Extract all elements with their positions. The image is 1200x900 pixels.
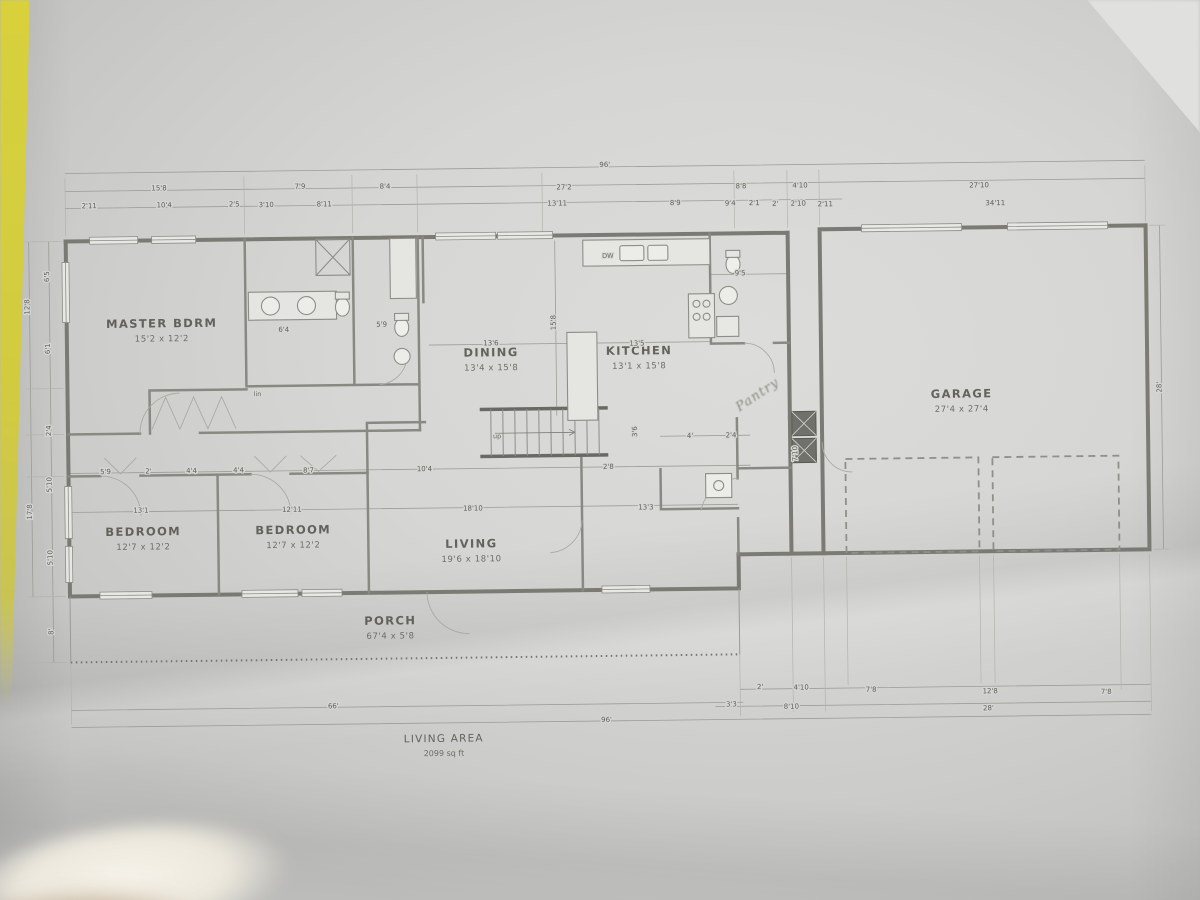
dimension-label: 7'8	[866, 686, 877, 694]
toilet-icon	[706, 473, 732, 497]
dimension-label: 96'	[599, 161, 610, 169]
dimension-label: 2'5	[229, 200, 240, 208]
dimension-label: 2'	[772, 200, 779, 208]
dimension-label: 4'10	[792, 181, 807, 189]
sink-icon	[394, 348, 410, 364]
dimension-label: 5'9	[376, 321, 387, 329]
room-label-bedroom-2: BEDROOM	[255, 522, 331, 537]
dimension-label: 4'	[687, 432, 694, 440]
dimension-label: 34'11	[985, 199, 1005, 207]
floor-plan-photo: MASTER BDRM 15'2 x 12'2 DINING 13'4 x 15…	[0, 0, 1200, 900]
room-label-living: LIVING	[445, 536, 497, 551]
interior-walls	[66, 233, 792, 597]
dimension-label: 7'10	[791, 446, 799, 461]
kitchen-sink-icon	[620, 245, 644, 260]
dimension-label: 28'	[983, 704, 994, 712]
room-label-master: MASTER BDRM	[106, 316, 217, 331]
sink-icon	[261, 297, 279, 315]
sink-icon	[719, 286, 737, 304]
room-dims-kitchen: 13'1 x 15'8	[612, 361, 666, 372]
dimension-label: 6'4	[278, 326, 289, 334]
handwritten-note: Pantry	[732, 375, 782, 415]
dimension-label: 3'6	[631, 426, 639, 437]
room-dims-bedroom-1: 12'7 x 12'2	[116, 542, 170, 553]
dimension-label: 13'1	[133, 507, 148, 515]
toilet-icon	[335, 298, 349, 316]
dimension-label: 8'10	[784, 703, 799, 711]
fur-highlight	[0, 806, 294, 900]
dimension-label: 2'4	[45, 425, 53, 436]
dimension-label: 13'5	[629, 339, 644, 347]
dimension-label: 15'8	[151, 184, 166, 192]
dimension-label: 12'11	[282, 506, 302, 514]
bathtub-icon	[390, 238, 417, 298]
room-dims-garage: 27'4 x 27'4	[935, 404, 989, 415]
dimension-label: 4'4	[186, 467, 197, 475]
dimension-label: 13'6	[483, 339, 499, 347]
floor-plan-drawing: MASTER BDRM 15'2 x 12'2 DINING 13'4 x 15…	[0, 0, 1200, 900]
dimension-label: 96'	[601, 716, 612, 724]
annotation-label: lin	[254, 390, 262, 398]
dimension-label: 13'3	[638, 503, 653, 511]
sink-icon	[297, 296, 315, 314]
dimension-label: 10'4	[417, 465, 433, 473]
garage-door-dashed	[845, 457, 979, 553]
room-dims-master: 15'2 x 12'2	[135, 334, 189, 345]
dimension-label: 28'	[1155, 382, 1163, 393]
dimension-label: 66'	[328, 702, 339, 710]
dimension-label: 8'4	[380, 183, 391, 191]
dimension-label: 8'8	[736, 182, 747, 190]
dimension-label: 2'4	[726, 431, 737, 439]
dimension-label: 12'8	[23, 299, 31, 314]
dimension-label: 2'	[757, 683, 764, 691]
room-dims-bedroom-2: 12'7 x 12'2	[266, 540, 320, 551]
dimension-label: 7'9	[295, 183, 306, 191]
room-label-garage: GARAGE	[931, 386, 993, 401]
room-label-bedroom-1: BEDROOM	[105, 524, 181, 539]
dimension-label: 8'7	[303, 466, 314, 474]
dimension-label: 27'10	[969, 181, 989, 189]
dimension-label: 27'2	[556, 183, 571, 191]
dimension-label: 8'11	[317, 200, 332, 208]
dimension-label: 3'10	[259, 201, 274, 209]
dimension-label: 2'8	[603, 463, 614, 471]
dimension-label: 4'10	[793, 683, 808, 691]
kitchen-sink-icon	[648, 245, 668, 260]
toilet-icon	[395, 318, 409, 336]
room-dims-porch: 67'4 x 5'8	[366, 631, 414, 642]
dimension-label: 15'8	[550, 315, 558, 330]
range-icon	[688, 294, 715, 338]
annotation-label: DW	[602, 252, 614, 260]
dimension-label: 6'5	[43, 271, 51, 282]
room-dims-living: 19'6 x 18'10	[441, 554, 501, 565]
dimension-label: 5'9	[100, 468, 111, 476]
dimension-label: 12'8	[983, 687, 998, 695]
living-area-value: 2099 sq ft	[424, 749, 465, 758]
garage-door-dashed	[992, 456, 1119, 552]
dimension-label: 5'10	[46, 550, 54, 565]
dimension-label: 2'1	[749, 199, 760, 207]
dimension-label: 3'3	[726, 700, 737, 708]
dimension-label: 2'10	[791, 199, 806, 207]
garage-doors	[845, 456, 1119, 553]
room-dims-dining: 13'4 x 15'8	[464, 363, 518, 374]
dimension-label: 8'	[47, 628, 55, 635]
fixtures	[248, 233, 817, 503]
dimension-label: 8'9	[670, 199, 681, 207]
dimension-label: 2'11	[818, 200, 833, 208]
dimension-label: 6'1	[44, 343, 52, 354]
dimension-label: 2'	[145, 467, 152, 475]
dimension-label: 18'10	[463, 504, 483, 512]
dimension-label: 2'11	[82, 202, 97, 210]
dimension-label: 9'4	[725, 199, 736, 207]
dimension-label: 17'8	[26, 504, 34, 519]
dimension-label: 4'4	[233, 466, 244, 474]
dimension-label: 9'5	[735, 269, 746, 277]
dimension-label: 13'11	[547, 199, 567, 207]
dimension-label: 7'8	[1101, 688, 1112, 696]
living-area-label: LIVING AREA	[404, 732, 484, 745]
peninsula-counter	[567, 332, 598, 420]
annotation-label: up	[493, 432, 501, 440]
dimension-label: 5'10	[46, 477, 54, 492]
laundry-unit	[717, 316, 739, 336]
dimension-label: 10'4	[157, 201, 173, 209]
room-label-porch: PORCH	[364, 613, 416, 628]
